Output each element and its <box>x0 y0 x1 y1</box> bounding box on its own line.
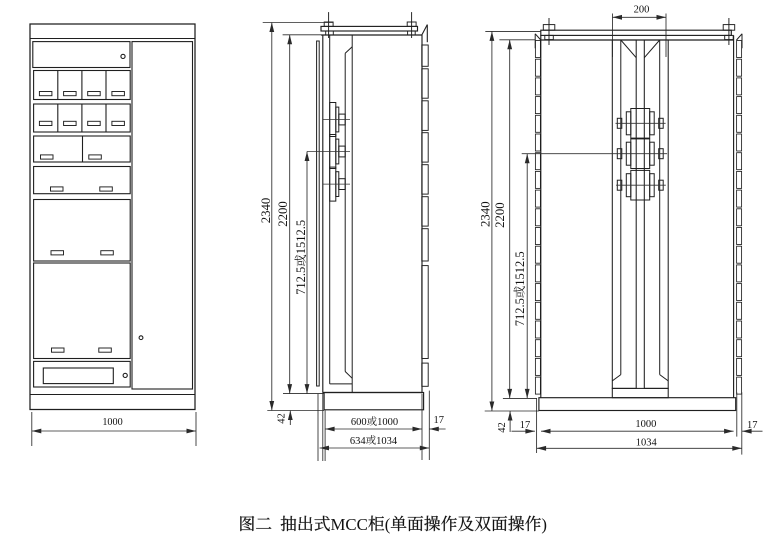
svg-text:): ) <box>541 515 547 534</box>
svg-text:712.5: 712.5 <box>294 267 308 295</box>
svg-text:1034: 1034 <box>376 436 398 447</box>
svg-text:17: 17 <box>747 420 758 431</box>
svg-text:1000: 1000 <box>102 417 122 428</box>
svg-text:1000: 1000 <box>377 417 398 428</box>
svg-text:MCC: MCC <box>331 515 368 534</box>
svg-text:200: 200 <box>634 5 650 16</box>
svg-text:17: 17 <box>520 420 531 431</box>
svg-text:42: 42 <box>277 413 288 424</box>
svg-text:1512.5: 1512.5 <box>513 251 527 285</box>
svg-text:(: ( <box>385 515 391 534</box>
svg-text:634: 634 <box>350 436 367 447</box>
svg-text:42: 42 <box>497 422 508 433</box>
svg-text:1000: 1000 <box>635 419 656 430</box>
svg-text:1034: 1034 <box>636 438 658 449</box>
svg-text:17: 17 <box>433 415 444 426</box>
svg-text:2340: 2340 <box>259 198 273 224</box>
svg-text:712.5: 712.5 <box>513 298 527 326</box>
svg-text:1512.5: 1512.5 <box>294 220 308 254</box>
svg-text:2200: 2200 <box>493 202 507 228</box>
svg-text:2340: 2340 <box>479 201 493 227</box>
svg-text:2200: 2200 <box>276 201 290 227</box>
svg-text:600: 600 <box>351 417 367 428</box>
